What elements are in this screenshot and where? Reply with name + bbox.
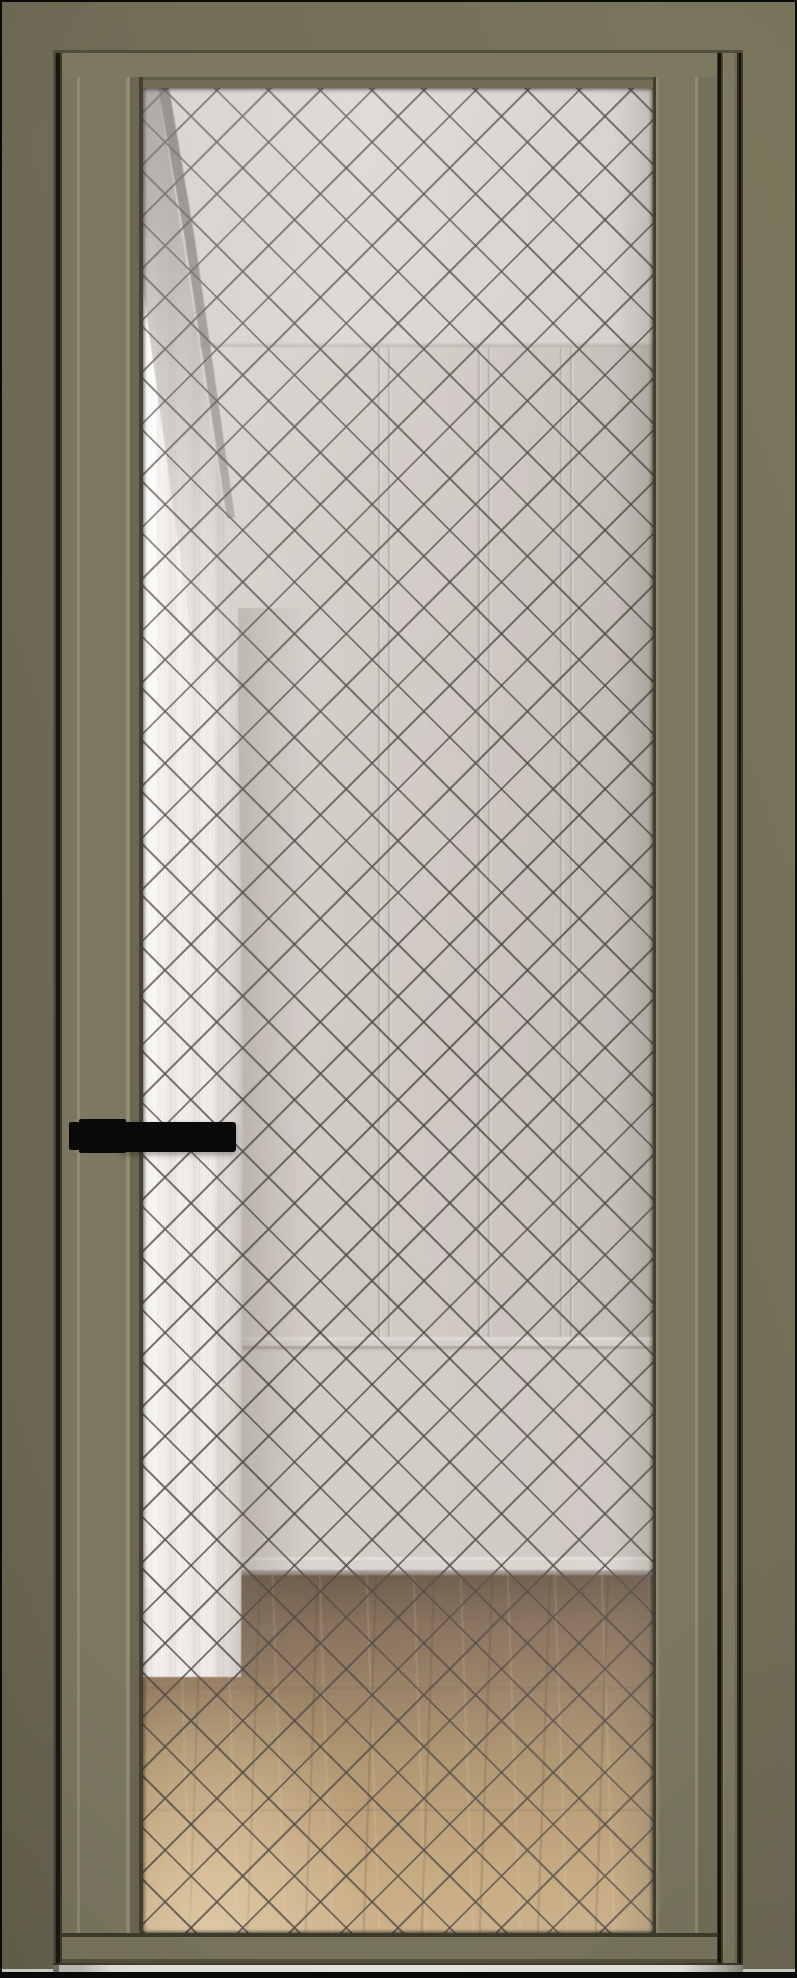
door-frame-left-reveal-shadow [53,53,62,1966]
door-leaf-right-stile [653,77,717,1966]
floor-threshold-strip [53,1963,743,1972]
door-lever-handle [120,1122,236,1152]
glass-panel [143,88,653,1933]
door-frame-right-outer-shadow [737,53,743,1966]
door-product-photo [0,0,797,1978]
photo-border-left [0,0,2,1978]
door-frame-right-jamb [723,53,737,1966]
door-leaf-bottom-rail [62,1933,717,1963]
photo-border-top [0,0,797,2]
frosted-glass-sheen [143,88,653,1933]
photo-border-bottom [0,1972,797,1978]
door-leaf-left-stile [62,77,143,1966]
door-frame-head [53,50,743,88]
